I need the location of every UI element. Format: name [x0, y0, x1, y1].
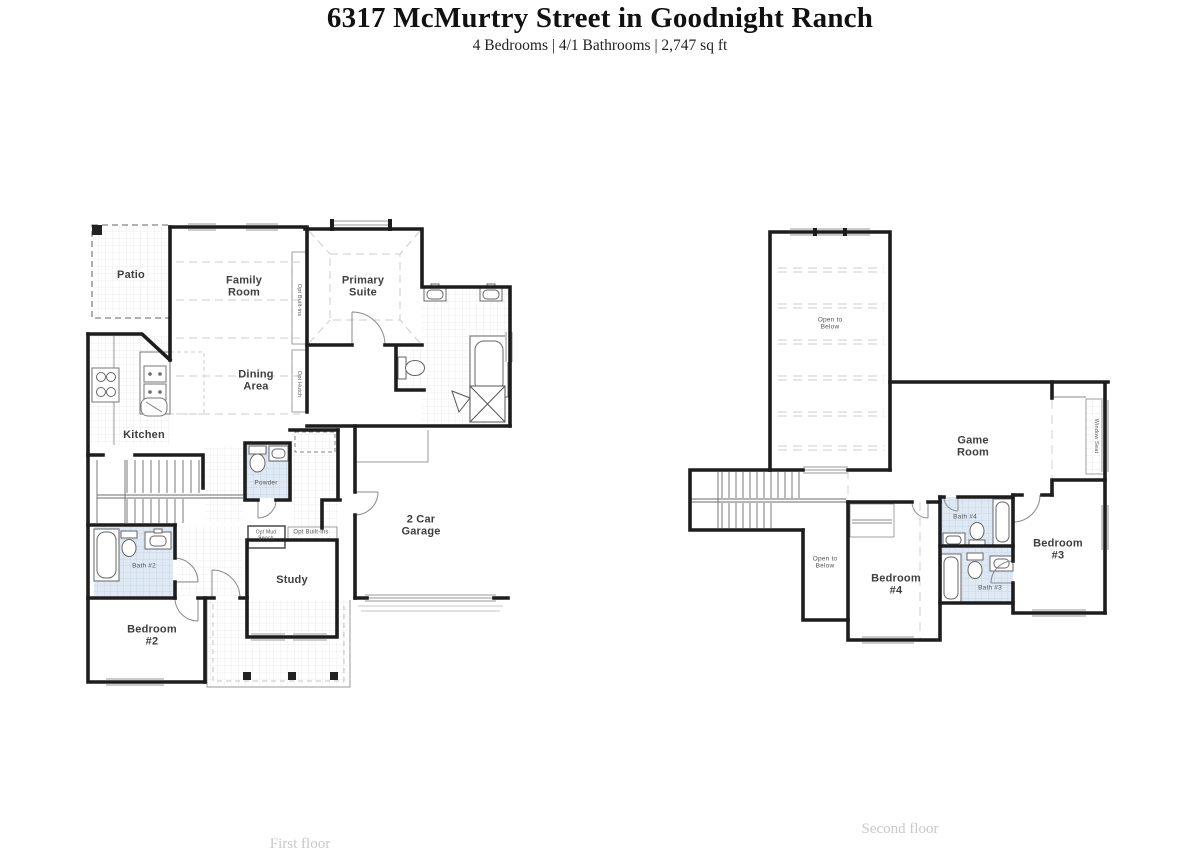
second-floor-caption: Second floor — [861, 821, 938, 838]
second-floor-stairs — [690, 472, 846, 528]
floor-plans-drawing — [0, 0, 1200, 850]
second-floor-floors — [942, 399, 1104, 603]
floor-plan-page: 6317 McMurtry Street in Goodnight Ranch … — [0, 0, 1200, 850]
ceiling-dashed-lines — [170, 231, 420, 452]
first-floor-caption: First floor — [270, 836, 330, 850]
second-floor-plan — [690, 228, 1110, 644]
first-floor-plan — [88, 219, 514, 687]
second-floor-walls — [690, 232, 1108, 640]
